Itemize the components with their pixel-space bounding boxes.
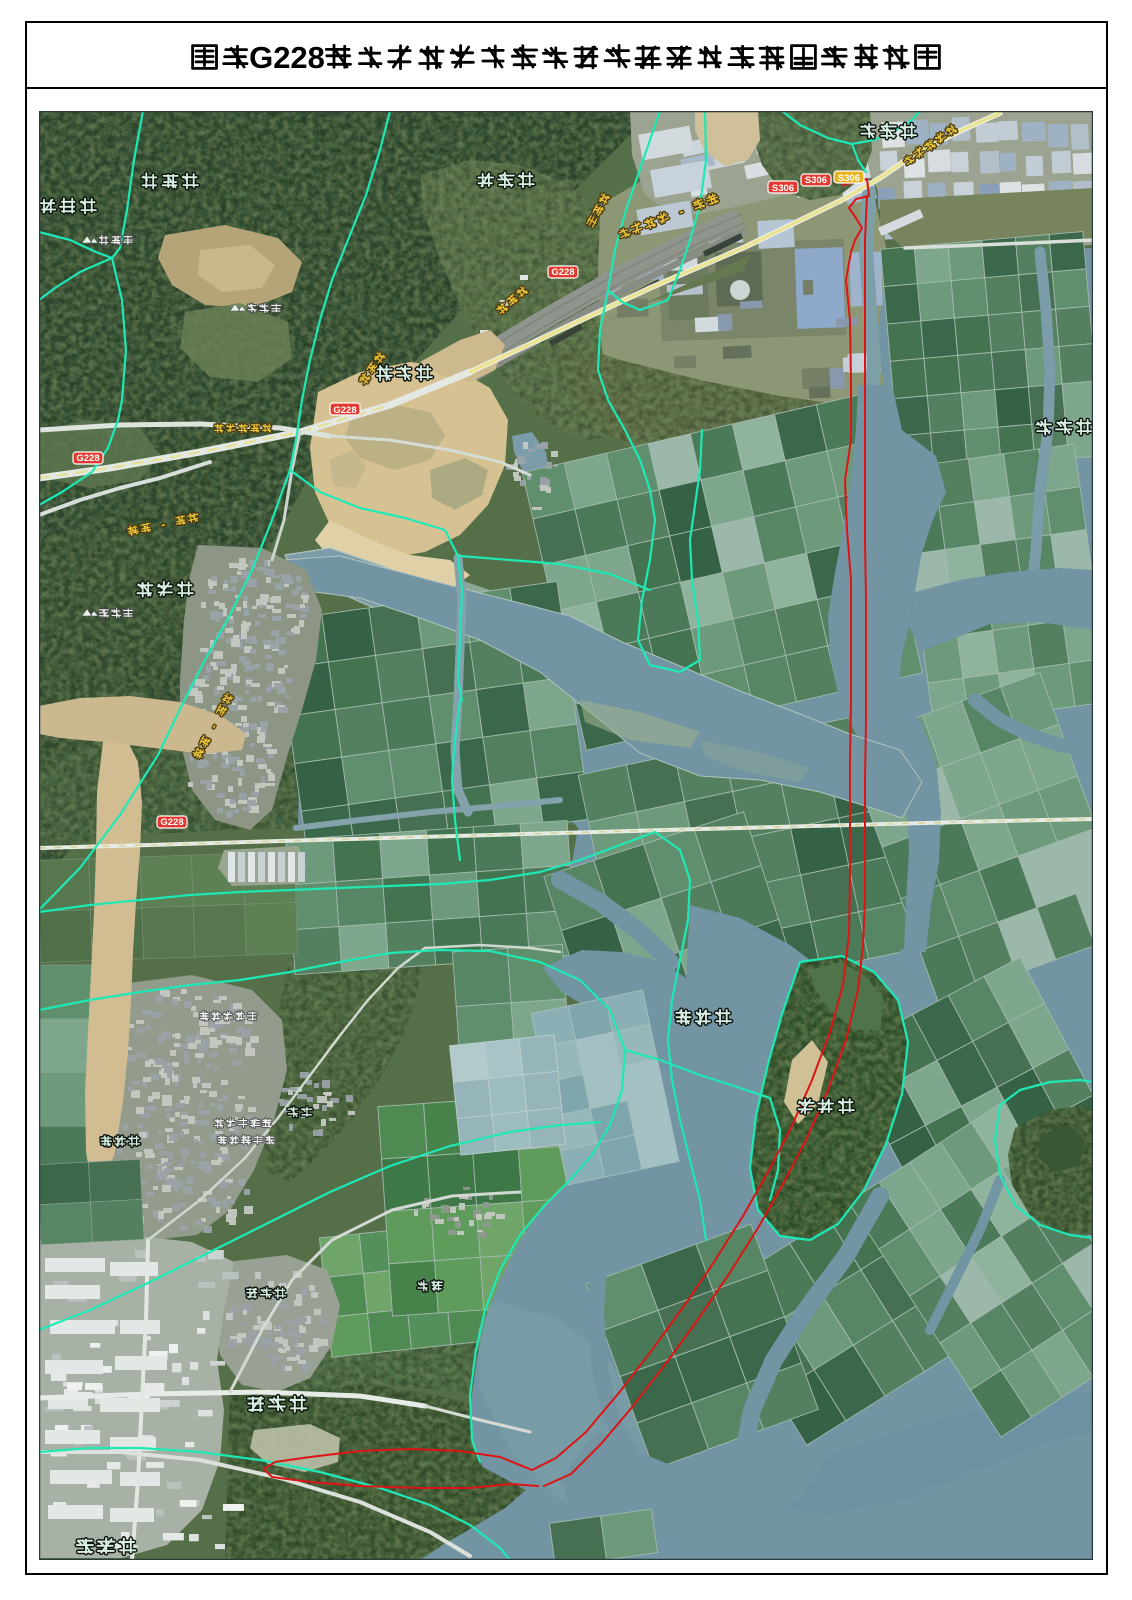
svg-text:S306: S306 <box>772 183 794 194</box>
svg-text:G228: G228 <box>76 453 99 464</box>
svg-text:S306: S306 <box>838 173 860 184</box>
svg-text:G228: G228 <box>249 40 325 75</box>
svg-text:G228: G228 <box>551 267 574 278</box>
svg-text:G228: G228 <box>160 817 183 828</box>
svg-text:S306: S306 <box>805 175 827 186</box>
svg-text:G228: G228 <box>333 405 356 416</box>
